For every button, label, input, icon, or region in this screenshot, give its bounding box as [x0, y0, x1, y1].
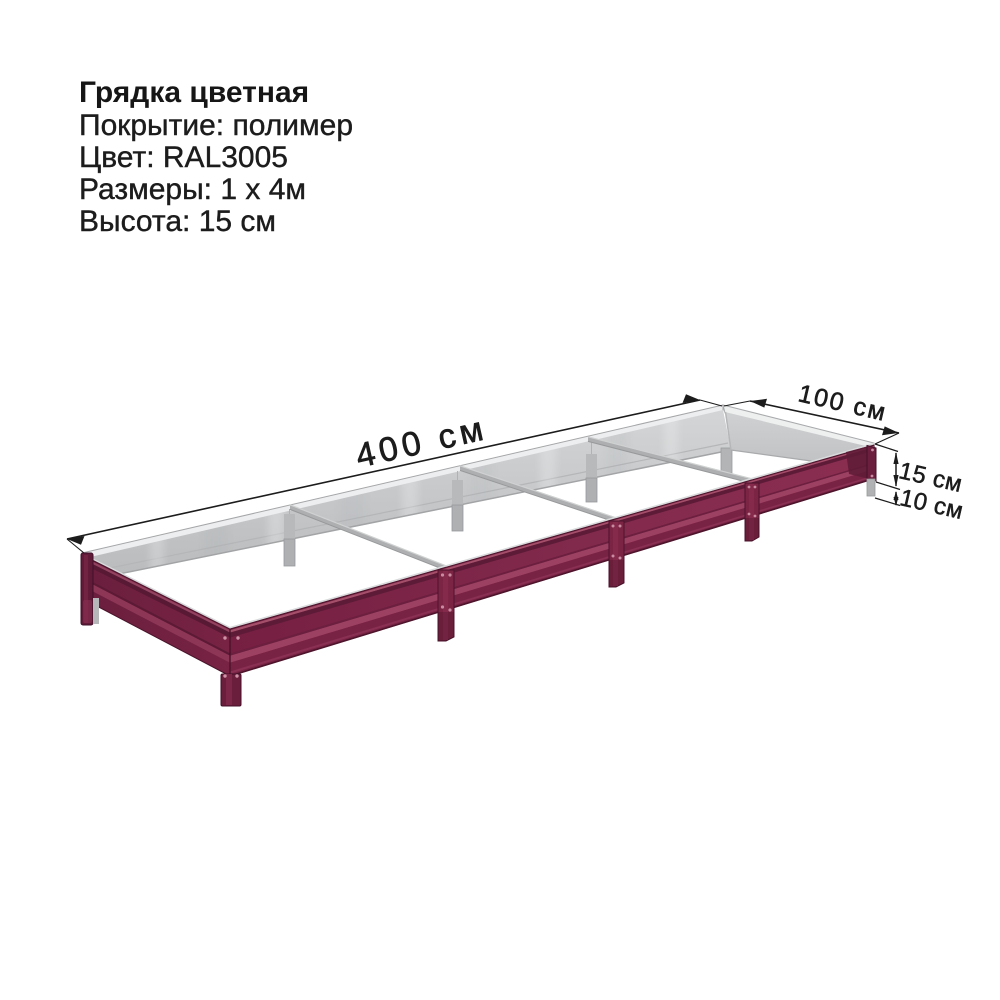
svg-text:Цвет: RAL3005: Цвет: RAL3005 [79, 141, 288, 174]
svg-text:Грядка цветная: Грядка цветная [79, 76, 309, 109]
svg-text:Высота: 15 см: Высота: 15 см [79, 205, 276, 238]
svg-text:Размеры: 1 х 4м: Размеры: 1 х 4м [79, 173, 306, 206]
svg-text:Покрытие: полимер: Покрытие: полимер [79, 109, 353, 142]
